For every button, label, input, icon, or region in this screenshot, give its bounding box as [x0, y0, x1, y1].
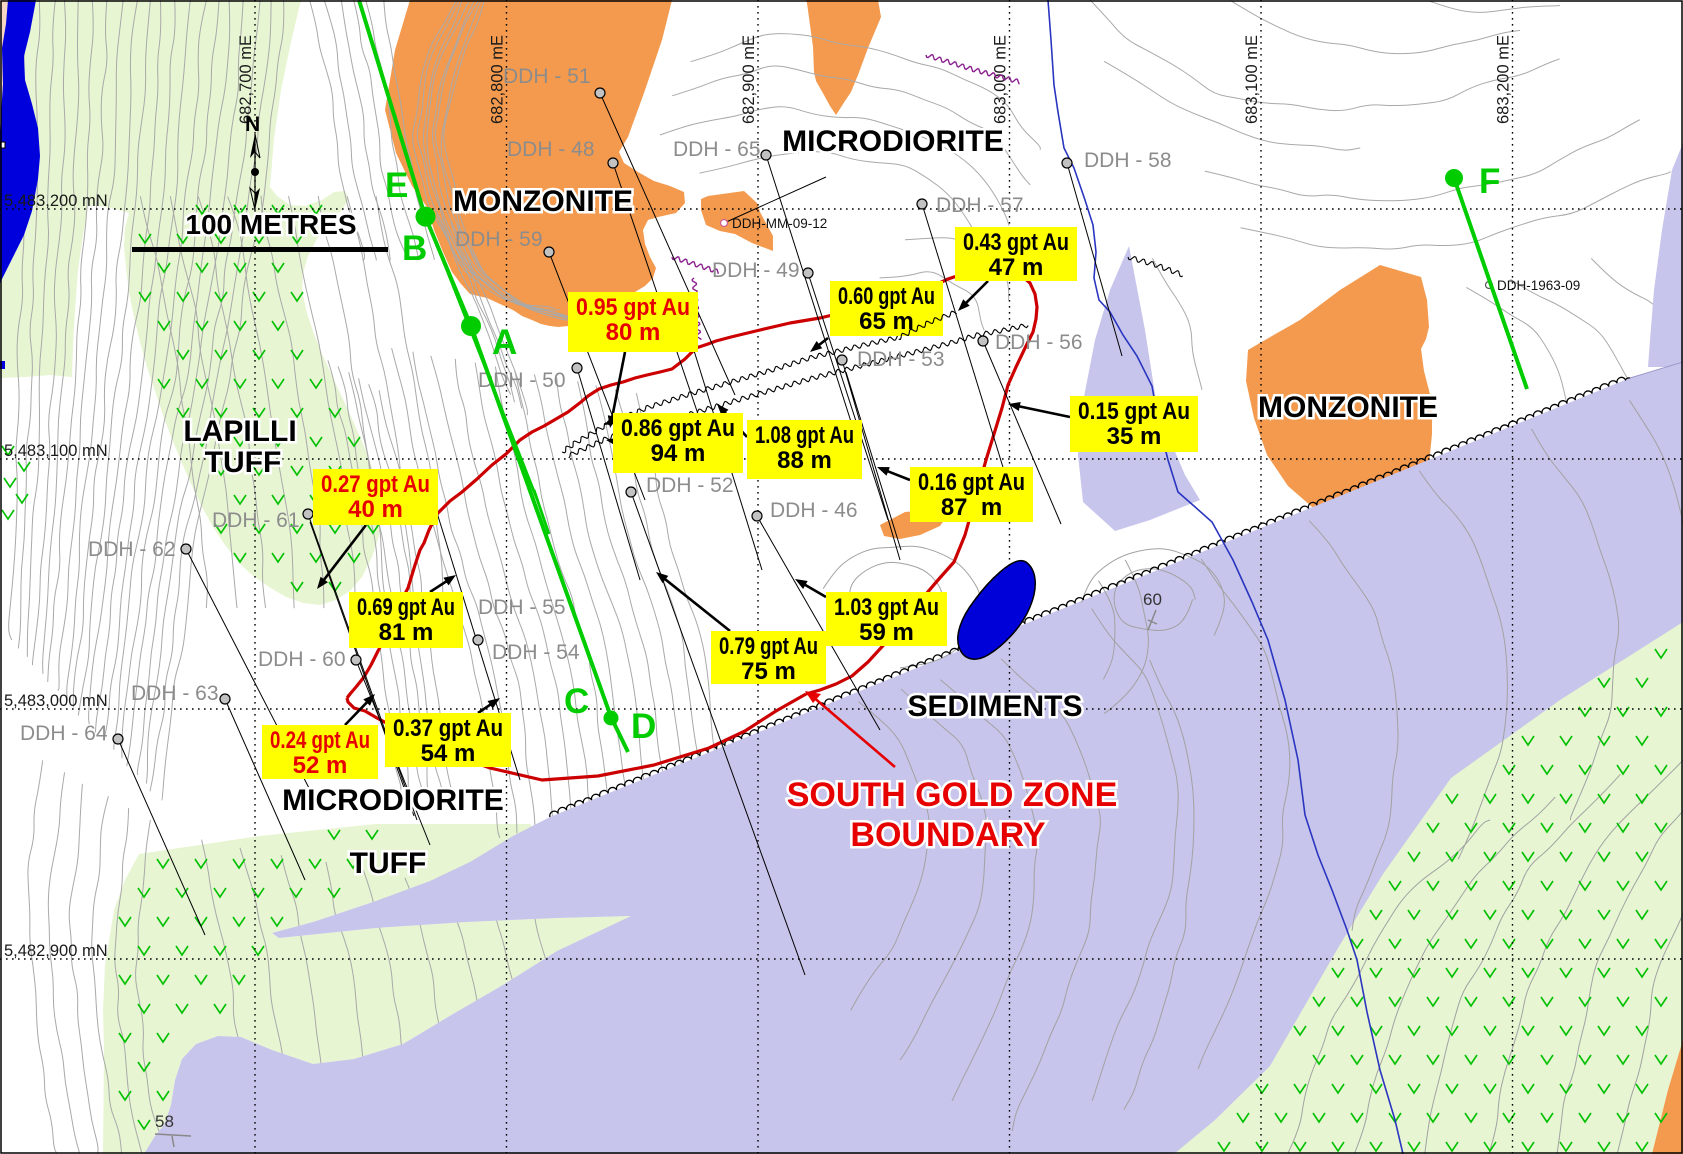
svg-text:DDH - 65: DDH - 65 [673, 138, 761, 161]
svg-text:DDH - 64: DDH - 64 [20, 722, 108, 745]
svg-text:SOUTH GOLD ZONE: SOUTH GOLD ZONE [787, 776, 1118, 814]
svg-text:58: 58 [155, 1112, 174, 1131]
svg-text:60: 60 [1143, 590, 1162, 609]
svg-text:LAPILLI: LAPILLI [183, 415, 296, 448]
svg-text:DDH - 48: DDH - 48 [507, 138, 595, 161]
svg-text:1.08 gpt Au: 1.08 gpt Au [755, 422, 854, 449]
svg-text:683,200 mE: 683,200 mE [1495, 35, 1513, 124]
svg-text:100 METRES: 100 METRES [185, 209, 356, 240]
svg-text:75 m: 75 m [741, 658, 796, 685]
svg-text:683,000 mE: 683,000 mE [992, 35, 1010, 124]
svg-text:0.79 gpt Au: 0.79 gpt Au [719, 633, 818, 660]
svg-text:DDH - 63: DDH - 63 [131, 682, 219, 705]
svg-text:47 m: 47 m [989, 254, 1044, 281]
svg-text:F: F [1479, 162, 1500, 201]
svg-text:D: D [631, 707, 656, 746]
svg-text:DDH - 53: DDH - 53 [857, 348, 945, 371]
svg-text:0.27 gpt Au: 0.27 gpt Au [321, 471, 430, 498]
svg-text:C: C [564, 682, 589, 721]
svg-text:DDH-MM-09-12: DDH-MM-09-12 [732, 216, 827, 231]
svg-text:5,483,000 mN: 5,483,000 mN [4, 692, 108, 710]
svg-text:5,483,200 mN: 5,483,200 mN [4, 192, 108, 210]
svg-text:DDH - 49: DDH - 49 [712, 259, 800, 282]
svg-text:MICRODIORITE: MICRODIORITE [282, 784, 504, 817]
svg-text:59 m: 59 m [859, 619, 914, 646]
svg-text:DDH - 51: DDH - 51 [503, 65, 591, 88]
svg-text:80 m: 80 m [606, 319, 661, 346]
svg-text:5,482,900 mN: 5,482,900 mN [4, 942, 108, 960]
svg-text:683,100 mE: 683,100 mE [1243, 35, 1261, 124]
svg-text:0.43 gpt Au: 0.43 gpt Au [963, 229, 1069, 256]
svg-text:94 m: 94 m [651, 440, 706, 467]
svg-text:MONZONITE: MONZONITE [1258, 391, 1438, 424]
svg-text:1.03 gpt Au: 1.03 gpt Au [834, 594, 939, 621]
svg-text:682,700 mE: 682,700 mE [237, 35, 255, 124]
svg-text:0.16 gpt Au: 0.16 gpt Au [918, 469, 1025, 496]
svg-text:35 m: 35 m [1107, 423, 1162, 450]
svg-text:DDH - 54: DDH - 54 [492, 641, 580, 664]
svg-text:40 m: 40 m [348, 496, 403, 523]
svg-text:682,900 mE: 682,900 mE [740, 35, 758, 124]
svg-text:B: B [402, 229, 427, 268]
svg-text:N: N [245, 113, 260, 136]
svg-text:0.37 gpt Au: 0.37 gpt Au [393, 715, 503, 742]
svg-text:DDH - 62: DDH - 62 [88, 538, 176, 561]
svg-text:54 m: 54 m [421, 740, 476, 767]
svg-text:TUFF: TUFF [205, 446, 282, 479]
svg-text:88 m: 88 m [777, 447, 832, 474]
svg-text:0.24 gpt Au: 0.24 gpt Au [270, 727, 370, 754]
svg-text:MICRODIORITE: MICRODIORITE [782, 125, 1004, 158]
svg-text:MONZONITE: MONZONITE [453, 185, 633, 218]
svg-text:E: E [385, 166, 408, 205]
svg-text:BOUNDARY: BOUNDARY [850, 816, 1046, 854]
svg-text:81 m: 81 m [379, 619, 434, 646]
svg-text:65 m: 65 m [859, 308, 914, 335]
svg-text:DDH - 55: DDH - 55 [478, 596, 566, 619]
svg-text:DDH - 60: DDH - 60 [258, 648, 346, 671]
svg-text:0.95 gpt Au: 0.95 gpt Au [576, 294, 690, 321]
svg-text:A: A [492, 323, 517, 362]
svg-text:87 m: 87 m [941, 494, 1002, 521]
svg-text:SEDIMENTS: SEDIMENTS [907, 690, 1082, 723]
svg-text:0.69 gpt Au: 0.69 gpt Au [357, 594, 455, 621]
svg-text:0.86 gpt Au: 0.86 gpt Au [621, 415, 735, 442]
svg-text:0.60 gpt Au: 0.60 gpt Au [838, 283, 935, 310]
svg-text:DDH - 52: DDH - 52 [646, 474, 734, 497]
svg-text:TUFF: TUFF [350, 847, 427, 880]
svg-text:DDH-1963-09: DDH-1963-09 [1497, 278, 1580, 293]
svg-text:DDH - 61: DDH - 61 [212, 509, 300, 532]
svg-text:DDH - 59: DDH - 59 [455, 228, 543, 251]
svg-text:DDH - 58: DDH - 58 [1084, 149, 1172, 172]
svg-text:DDH - 46: DDH - 46 [770, 499, 858, 522]
svg-text:0.15 gpt Au: 0.15 gpt Au [1078, 398, 1190, 425]
svg-text:DDH - 57: DDH - 57 [936, 194, 1024, 217]
svg-text:5,483,100 mN: 5,483,100 mN [4, 442, 108, 460]
svg-text:DDH - 56: DDH - 56 [995, 331, 1083, 354]
svg-text:52 m: 52 m [293, 752, 348, 779]
